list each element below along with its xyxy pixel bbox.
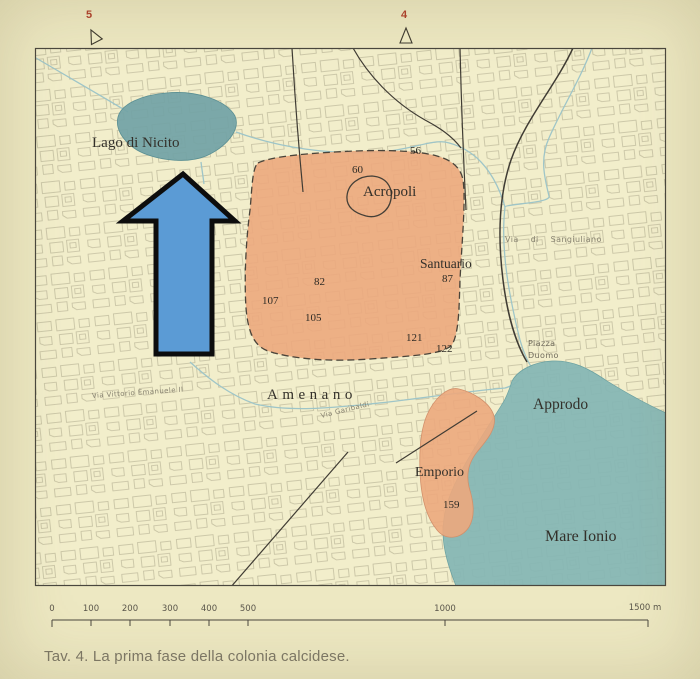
site-number-159: 159 xyxy=(443,500,460,512)
scale-label-0: 0 xyxy=(49,604,54,614)
scale-label-1000: 1000 xyxy=(434,604,456,614)
scale-label-100: 100 xyxy=(83,604,99,614)
plate-marker-4-label: 4 xyxy=(401,9,407,21)
plate-marker-5-label: 5 xyxy=(86,9,92,21)
site-number-105: 105 xyxy=(305,313,322,325)
scale-label-400: 400 xyxy=(201,604,217,614)
emporio-label: Emporio xyxy=(415,466,464,481)
plate-marker-5-icon xyxy=(87,27,103,44)
acropoli-label: Acropoli xyxy=(363,185,416,201)
amenano-label: Amenano xyxy=(267,388,357,404)
via-vittorio-label: Via Vittorio Emanuele II xyxy=(92,387,184,401)
emporio-area-shape xyxy=(420,389,495,538)
site-number-60: 60 xyxy=(352,165,363,177)
sea-shape xyxy=(443,361,666,586)
site-number-122: 122 xyxy=(436,344,453,356)
plate-marker-4-icon xyxy=(400,28,412,43)
scale-label-500: 500 xyxy=(240,604,256,614)
site-number-82: 82 xyxy=(314,277,325,289)
scale-label-300: 300 xyxy=(162,604,178,614)
map-border xyxy=(36,49,666,586)
via-garibaldi-label: Via Garibaldi xyxy=(320,401,370,420)
city-blocks-texture xyxy=(25,38,676,596)
settlement-area-shape xyxy=(245,151,464,361)
mare-ionio-label: Mare Ionio xyxy=(545,529,617,546)
figure-caption: Tav. 4. La prima fase della colonia calc… xyxy=(44,648,350,665)
santuario-label: Santuario xyxy=(420,257,472,271)
approdo-label: Approdo xyxy=(533,397,588,413)
site-number-87: 87 xyxy=(442,274,453,286)
stream-lines xyxy=(36,48,592,409)
blue-arrow-annotation xyxy=(123,174,235,354)
lake-label: Lago di Nicito xyxy=(92,136,179,152)
map-figure xyxy=(0,0,700,679)
piazza-duomo-label-line1: Piazza xyxy=(528,340,555,348)
piazza-duomo-label-line2: Duomo xyxy=(528,352,559,360)
acropoli-outline xyxy=(347,176,391,217)
road-lines xyxy=(230,48,573,588)
site-number-121: 121 xyxy=(406,333,423,345)
site-number-107: 107 xyxy=(262,296,279,308)
site-number-56: 56 xyxy=(410,146,421,158)
scale-label-200: 200 xyxy=(122,604,138,614)
scale-label-1500m: 1500 m xyxy=(629,603,662,613)
via-sangiuliano-label: Via di Sangiuliano xyxy=(505,236,602,244)
scale-bar xyxy=(52,620,648,627)
map-background xyxy=(35,48,666,586)
lake-nicito-shape xyxy=(117,92,236,160)
scanned-map-page: 5 4 Lago di Nicito Acropoli Santuario Am… xyxy=(0,0,700,679)
